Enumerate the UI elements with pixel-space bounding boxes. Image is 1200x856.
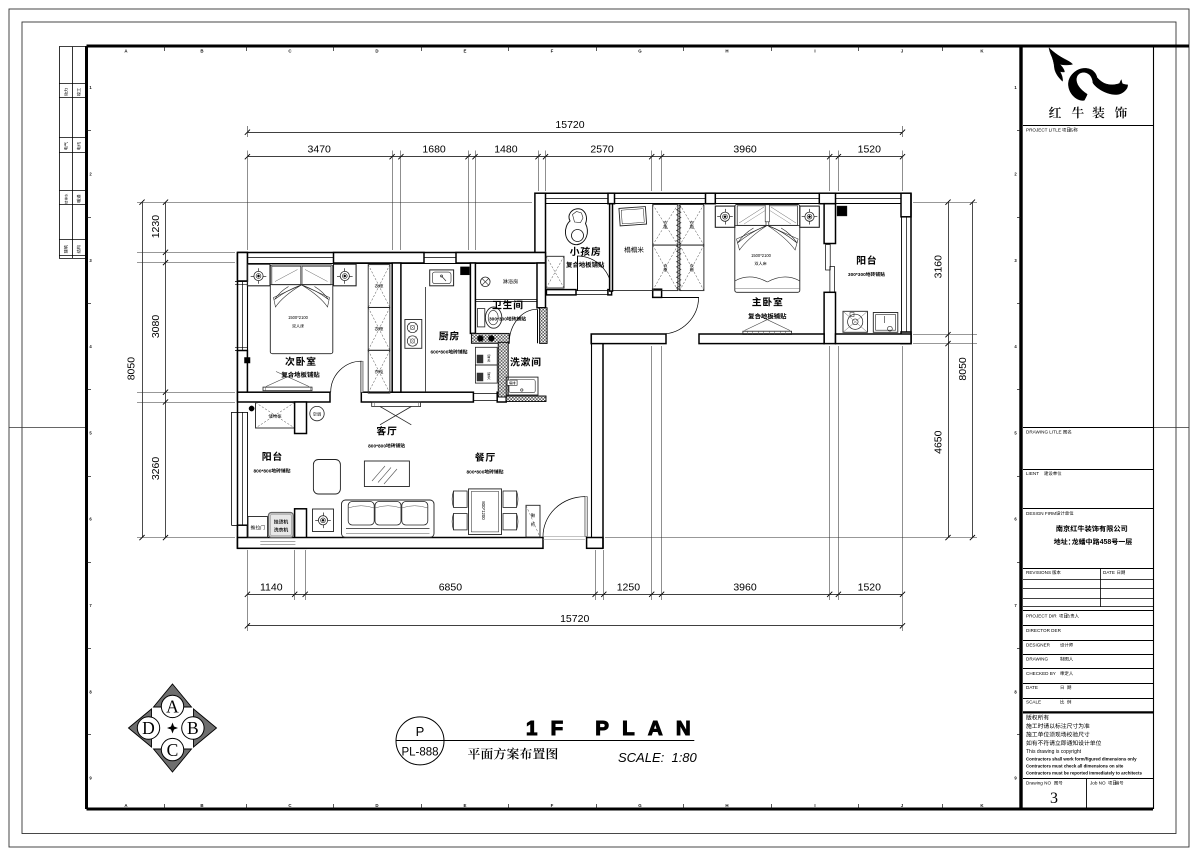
svg-text:B: B bbox=[200, 49, 203, 54]
svg-text:3470: 3470 bbox=[308, 144, 332, 156]
svg-text:1520: 1520 bbox=[858, 581, 882, 593]
svg-text:E: E bbox=[464, 49, 467, 54]
svg-text:A: A bbox=[166, 697, 179, 717]
svg-text:4650: 4650 bbox=[933, 430, 945, 454]
svg-text:REVISIONS: REVISIONS bbox=[1026, 570, 1051, 575]
svg-text:8050: 8050 bbox=[957, 357, 969, 381]
svg-text:H: H bbox=[725, 803, 728, 808]
svg-text:3960: 3960 bbox=[733, 581, 757, 593]
svg-text:CHECKED BY: CHECKED BY bbox=[1026, 671, 1056, 676]
svg-text:H: H bbox=[725, 49, 728, 54]
svg-text:Contractors must check all dim: Contractors must check all dimensions on… bbox=[1026, 763, 1124, 768]
svg-text:600*800: 600*800 bbox=[431, 350, 449, 356]
svg-text:1140: 1140 bbox=[260, 581, 283, 593]
svg-text:I: I bbox=[814, 803, 815, 808]
svg-text:D: D bbox=[375, 803, 378, 808]
svg-text:SCALE: 1:80: SCALE: 1:80 bbox=[618, 750, 698, 765]
svg-text:G: G bbox=[638, 49, 642, 54]
svg-text:LIENT: LIENT bbox=[1026, 471, 1039, 476]
svg-text:1480: 1480 bbox=[494, 144, 518, 156]
svg-text:DRAWING: DRAWING bbox=[1026, 657, 1048, 662]
svg-text:1680: 1680 bbox=[422, 144, 446, 156]
svg-text:B: B bbox=[187, 718, 199, 738]
svg-text:3160: 3160 bbox=[933, 255, 945, 279]
svg-text:15720: 15720 bbox=[560, 613, 589, 625]
svg-text:Contractors must be reported i: Contractors must be reported immediately… bbox=[1026, 770, 1142, 775]
svg-text:1520: 1520 bbox=[858, 144, 882, 156]
svg-text:1250: 1250 bbox=[617, 581, 641, 593]
svg-text:DRAWING LITLE: DRAWING LITLE bbox=[1026, 430, 1062, 435]
svg-text:15720: 15720 bbox=[555, 119, 584, 131]
svg-text:DESIGNER: DESIGNER bbox=[1026, 643, 1051, 648]
svg-text:D: D bbox=[142, 718, 155, 738]
svg-text:DIRECTOR DER: DIRECTOR DER bbox=[1026, 628, 1062, 633]
svg-text:3: 3 bbox=[1050, 790, 1058, 807]
svg-text:DATE: DATE bbox=[1026, 685, 1038, 690]
svg-text:Contractors shall work form/fi: Contractors shall work form/figured dime… bbox=[1026, 756, 1137, 761]
svg-text:6850: 6850 bbox=[439, 581, 463, 593]
svg-text:PROJECT DIR: PROJECT DIR bbox=[1026, 614, 1057, 619]
svg-text:F: F bbox=[551, 803, 554, 808]
svg-text:I: I bbox=[814, 49, 815, 54]
svg-text:称: 称 bbox=[1073, 127, 1078, 134]
svg-text:Drawing NO: Drawing NO bbox=[1026, 781, 1051, 786]
svg-text:300*300: 300*300 bbox=[848, 272, 866, 278]
svg-text:PL-888: PL-888 bbox=[401, 747, 438, 759]
svg-text:F: F bbox=[551, 49, 554, 54]
svg-text:1500*2100: 1500*2100 bbox=[751, 253, 772, 258]
svg-text:SCALE: SCALE bbox=[1026, 700, 1041, 705]
svg-text:800*800: 800*800 bbox=[254, 468, 272, 474]
svg-text:This drawing is copyright: This drawing is copyright bbox=[1026, 749, 1082, 755]
svg-text:D: D bbox=[375, 49, 378, 54]
svg-text:458: 458 bbox=[1100, 539, 1112, 546]
svg-text:300*300: 300*300 bbox=[489, 317, 507, 323]
svg-text:1500*2100: 1500*2100 bbox=[288, 315, 309, 320]
svg-text:G: G bbox=[638, 803, 642, 808]
svg-text:C: C bbox=[167, 740, 179, 760]
svg-text:PROJECT LITLE: PROJECT LITLE bbox=[1026, 128, 1061, 133]
svg-text:8050: 8050 bbox=[125, 357, 137, 381]
svg-text:E: E bbox=[464, 803, 467, 808]
svg-text:P: P bbox=[416, 724, 425, 739]
svg-text:DESIGN FIRM: DESIGN FIRM bbox=[1026, 511, 1056, 516]
svg-text:3260: 3260 bbox=[150, 457, 162, 481]
svg-text:800*1200: 800*1200 bbox=[481, 501, 486, 520]
svg-text:1230: 1230 bbox=[150, 215, 162, 239]
svg-text:B: B bbox=[200, 803, 203, 808]
svg-text:Job NO: Job NO bbox=[1090, 781, 1106, 786]
svg-text:3960: 3960 bbox=[733, 144, 757, 156]
svg-text:1F PLAN: 1F PLAN bbox=[526, 717, 704, 740]
svg-text:800*800: 800*800 bbox=[368, 443, 386, 449]
svg-text:3080: 3080 bbox=[150, 315, 162, 339]
svg-text:800*800: 800*800 bbox=[467, 469, 485, 475]
svg-text:DATE: DATE bbox=[1103, 570, 1115, 575]
svg-text:2570: 2570 bbox=[590, 144, 614, 156]
